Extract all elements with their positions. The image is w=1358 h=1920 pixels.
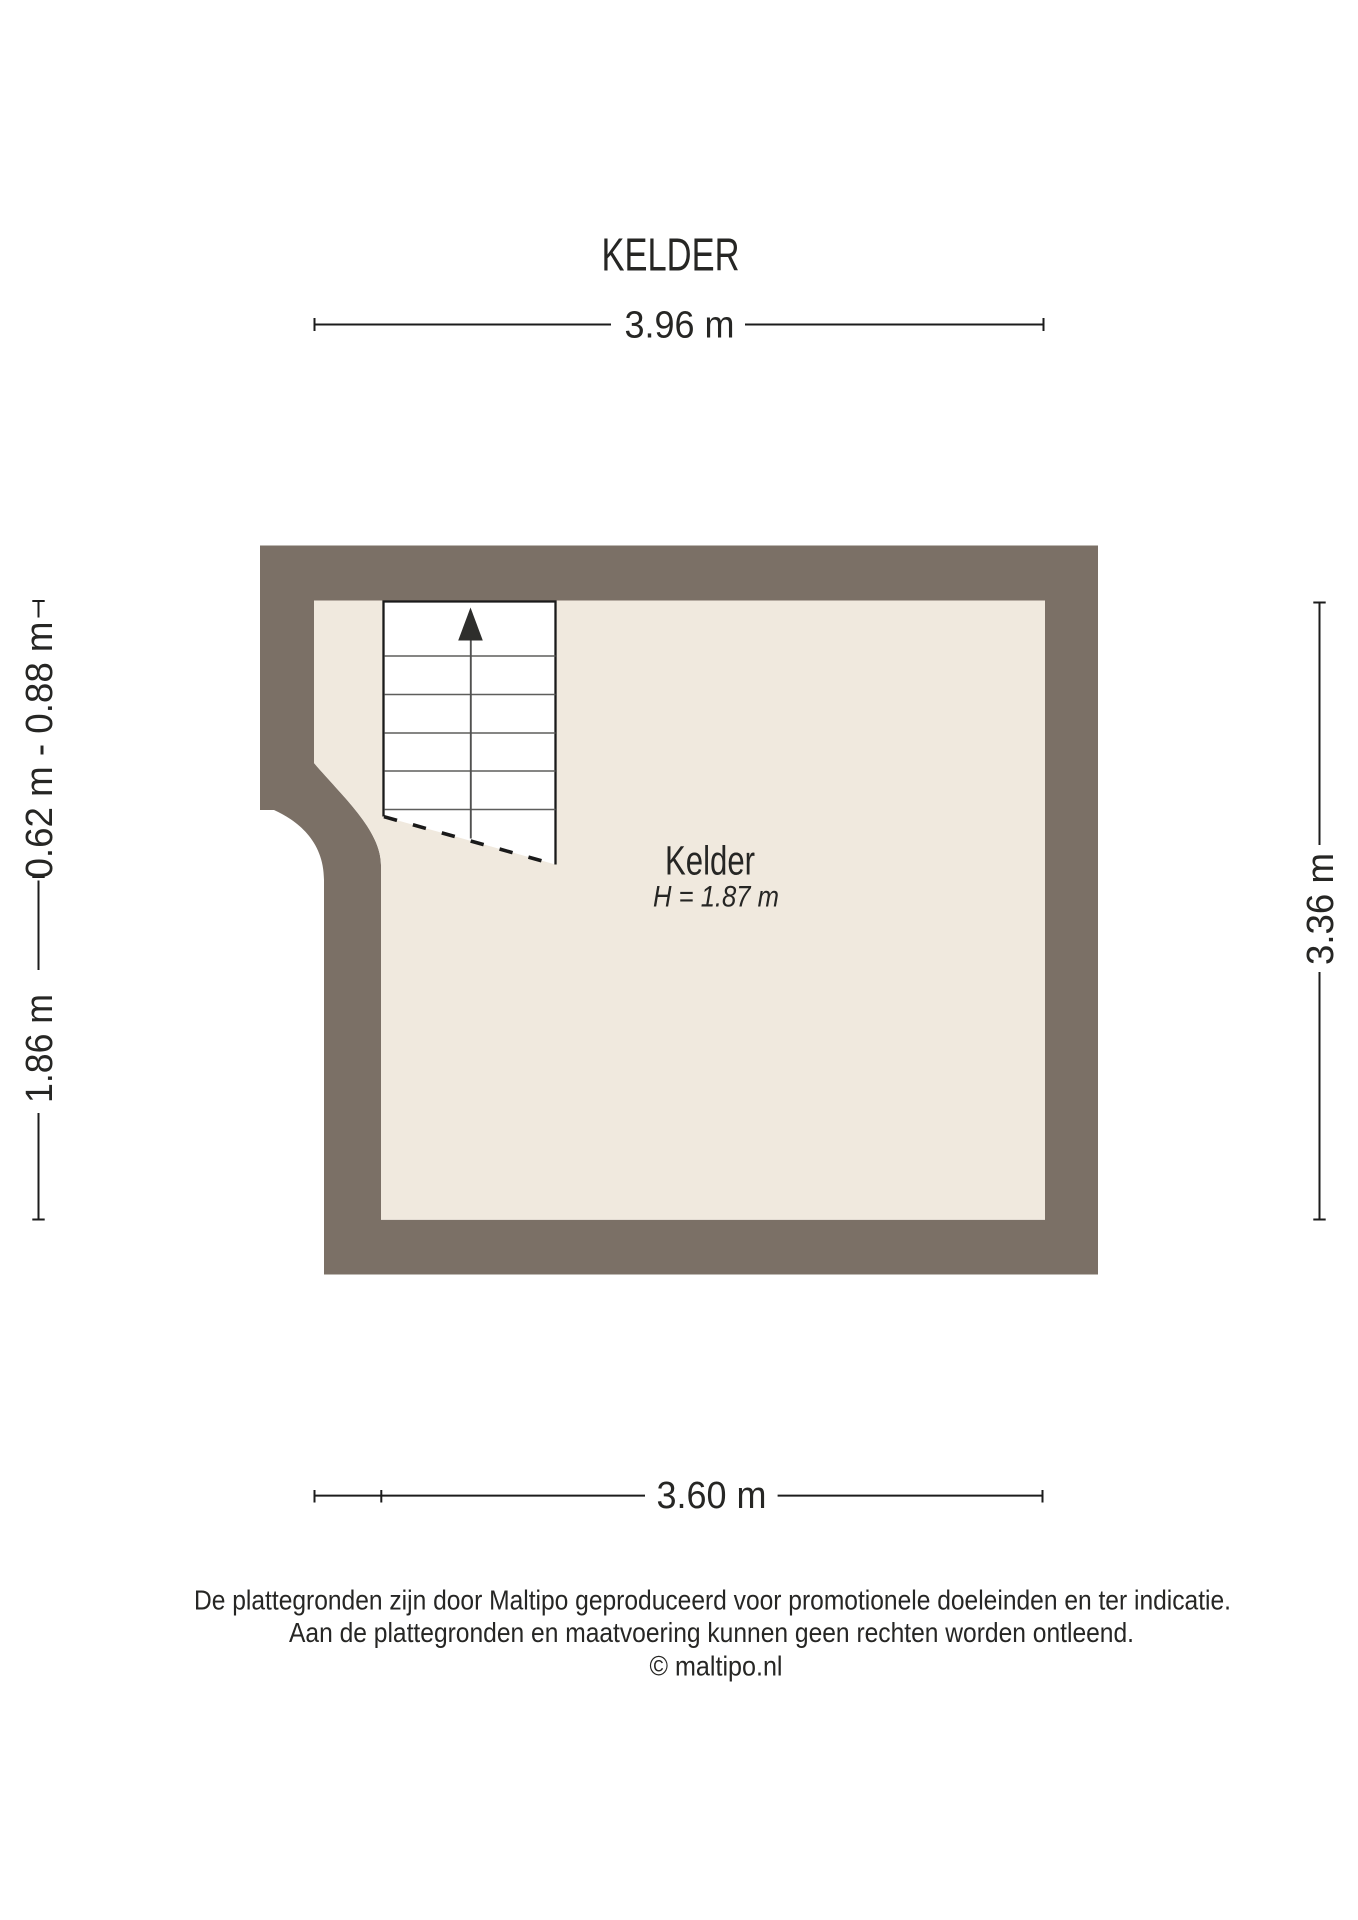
svg-text:1.86 m: 1.86 m: [19, 994, 61, 1103]
svg-text:Aan de plattegronden en maatvo: Aan de plattegronden en maatvoering kunn…: [289, 1617, 1134, 1648]
svg-text:3.36 m: 3.36 m: [1300, 853, 1342, 965]
svg-text:3.60 m: 3.60 m: [657, 1475, 767, 1517]
svg-text:0.62 m - 0.88 m: 0.62 m - 0.88 m: [19, 622, 61, 879]
svg-text:H = 1.87 m: H = 1.87 m: [653, 881, 779, 914]
svg-text:De plattegronden zijn door Mal: De plattegronden zijn door Maltipo gepro…: [194, 1585, 1231, 1616]
svg-text:Kelder: Kelder: [665, 838, 755, 884]
svg-text:3.96 m: 3.96 m: [625, 305, 735, 347]
svg-text:© maltipo.nl: © maltipo.nl: [650, 1651, 783, 1682]
svg-text:KELDER: KELDER: [602, 229, 740, 281]
